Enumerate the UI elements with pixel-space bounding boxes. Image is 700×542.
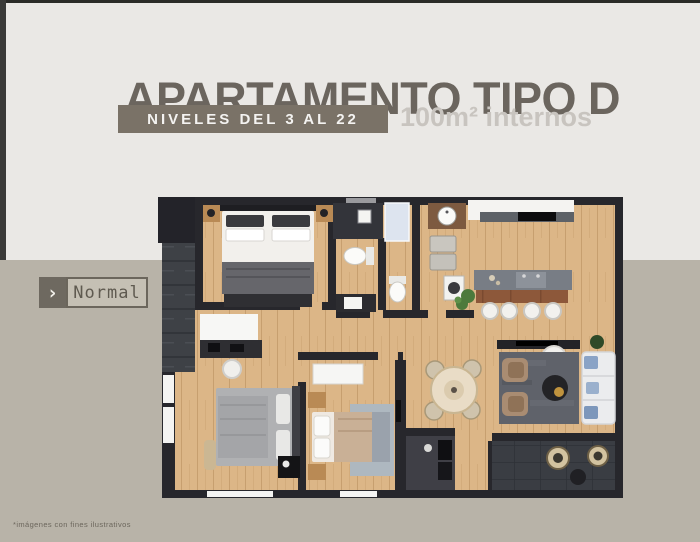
levels-badge: NIVELES DEL 3 AL 22 (118, 105, 388, 133)
view-toggle-label: Normal (66, 277, 148, 308)
chevron-right-icon: › (39, 277, 66, 308)
master-bedroom (203, 205, 333, 307)
view-toggle[interactable]: › Normal (39, 277, 148, 308)
living-room (497, 335, 615, 424)
bedroom-2 (204, 386, 300, 478)
disclaimer-text: *imágenes con fines ilustrativos (13, 520, 131, 529)
top-border (0, 0, 700, 3)
dining-area (425, 360, 481, 420)
area-label: 100m² internos (400, 102, 592, 133)
floor-plan (150, 190, 625, 505)
balcony (492, 441, 615, 490)
storage-closet (406, 436, 455, 490)
